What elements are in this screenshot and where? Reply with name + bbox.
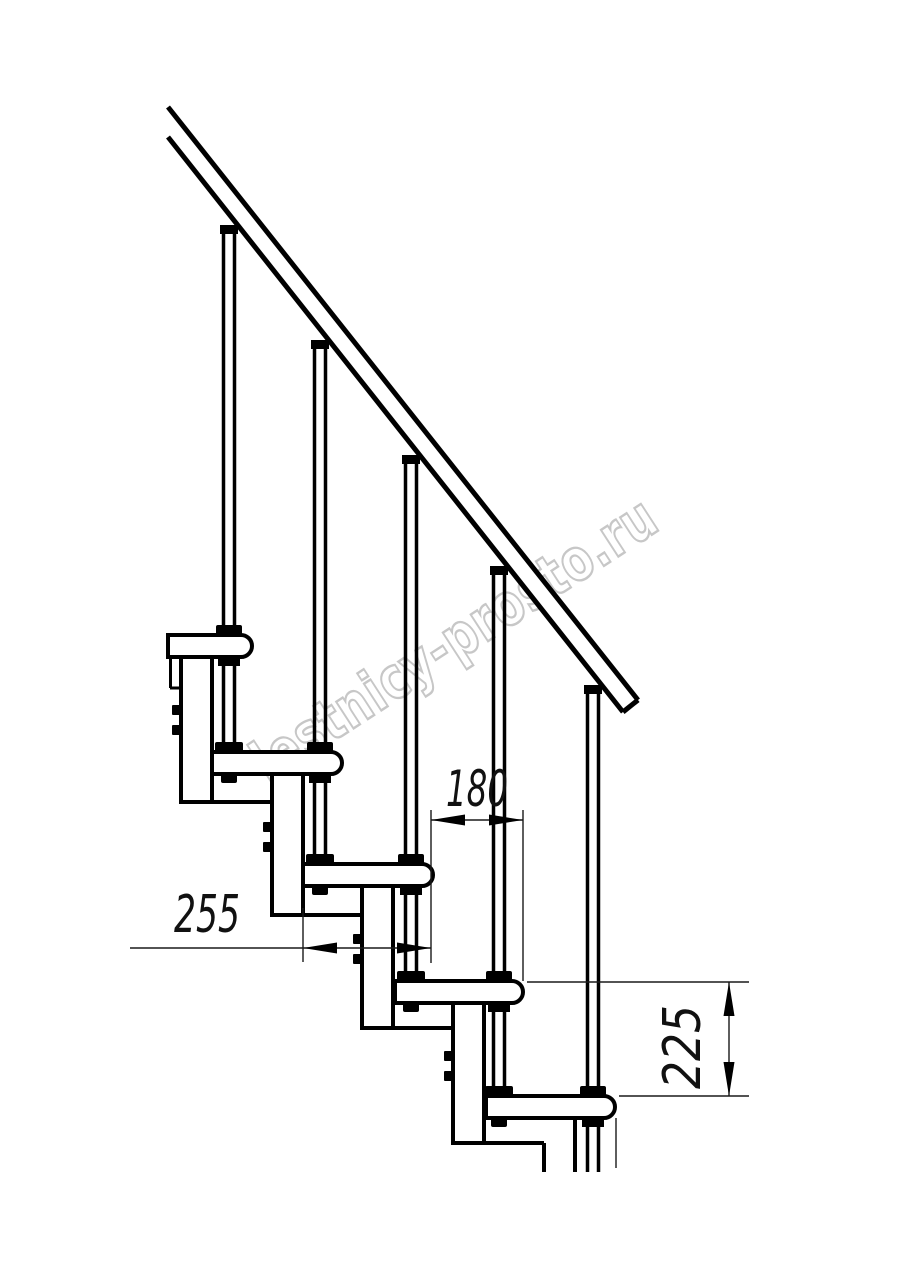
arrow-down (724, 1062, 735, 1096)
arrow-left (303, 943, 337, 954)
dimension-step-rise-225: 225 (527, 982, 749, 1096)
baluster-5 (580, 685, 606, 1097)
staircase-technical-drawing: lestnicy-prosto.ru (0, 0, 914, 1280)
stringer-module-3 (362, 886, 393, 1028)
watermark-text: lestnicy-prosto.ru (239, 483, 670, 796)
stringer-module-2 (272, 774, 303, 915)
watermark: lestnicy-prosto.ru (239, 483, 670, 796)
tread-2 (212, 752, 342, 774)
tread-1 (168, 635, 252, 657)
tread-3 (303, 864, 433, 886)
handrail (168, 107, 638, 712)
baluster-1 (216, 225, 242, 636)
tread-5 (486, 1096, 615, 1118)
dimension-tread-length-label: 255 (174, 885, 240, 945)
staircase-drawing-page: lestnicy-prosto.ru (0, 0, 914, 1280)
handrail-top-edge (168, 107, 638, 700)
dimension-step-run-180: 180 (431, 760, 523, 981)
dimension-step-run-label: 180 (446, 760, 508, 818)
dimension-step-rise-label: 225 (653, 1005, 713, 1089)
stringer-module-4 (453, 1003, 484, 1143)
arrow-right (397, 943, 431, 954)
tread-4 (395, 981, 523, 1003)
stringer-module-5 (544, 1118, 575, 1172)
stringer-module-1 (181, 657, 212, 802)
extension-lines (527, 982, 749, 1096)
dimensions: 180 255 225 (130, 760, 749, 1096)
arrow-up (724, 982, 735, 1016)
extension-lines (431, 810, 523, 981)
baluster-rod-5 (582, 1118, 604, 1172)
